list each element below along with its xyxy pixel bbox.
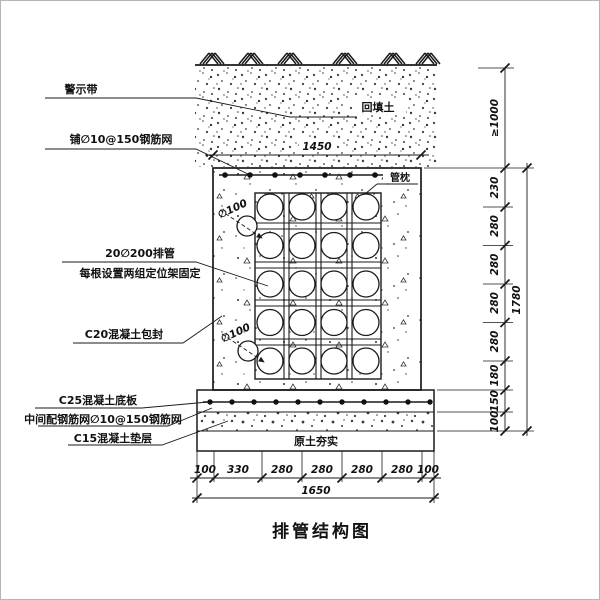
top-mesh-label: 铺∅10@150钢筋网: [70, 132, 173, 146]
pipe-circle: [289, 271, 315, 297]
encasement-label: C20混凝土包封: [85, 327, 163, 341]
dim-bottom-overall-value: 1650: [301, 485, 330, 497]
dim-right-seg-0: 230: [489, 177, 501, 199]
warning-tape-label: 警示带: [64, 82, 98, 96]
pipe-circle: [321, 271, 347, 297]
pipe-row-label-1: 20∅200排管: [105, 246, 175, 260]
slab-mesh-label: 中间配钢筋网∅10@150钢筋网: [24, 412, 182, 426]
dim-cover-depth: ≥1000: [489, 99, 501, 137]
pipe-circle: [257, 233, 283, 259]
pipe-circle: [321, 348, 347, 374]
pipe-circle: [321, 310, 347, 336]
pipe-circle: [353, 348, 379, 374]
pipe-duct-structure-drawing: 回填土 1450: [0, 0, 600, 600]
dim-right-seg-7: 100: [489, 411, 501, 433]
pipe-circle: [353, 310, 379, 336]
dim-bottom-seg-6: 100: [417, 464, 439, 476]
pipe-circle: [289, 194, 315, 220]
dim-bottom-seg-5: 280: [391, 464, 413, 476]
compacted-soil-label: 原土夯实: [294, 434, 338, 448]
cushion-label: C15混凝土垫层: [74, 431, 152, 445]
backfill-label: 回填土: [362, 100, 395, 114]
pipe-circle: [289, 233, 315, 259]
dim-top-width-value: 1450: [302, 141, 331, 153]
cushion-texture: [198, 412, 433, 431]
pipe-circle: [257, 348, 283, 374]
pipe-circle: [353, 194, 379, 220]
dim-right-seg-1: 280: [489, 215, 501, 237]
base-slab-label: C25混凝土底板: [59, 393, 138, 407]
dim-right-seg-5: 180: [489, 365, 501, 387]
dim-bottom-seg-1: 330: [227, 464, 249, 476]
pipe-circle: [257, 310, 283, 336]
dim-bottom-seg-0: 100: [194, 464, 216, 476]
dim-right-seg-2: 280: [489, 254, 501, 276]
pipe-circle: [353, 233, 379, 259]
drawing-canvas: 回填土 1450: [0, 0, 600, 600]
dim-bottom-seg-2: 280: [271, 464, 293, 476]
pipe-circle: [353, 271, 379, 297]
dim-right-seg-4: 280: [489, 331, 501, 353]
pipe-row-label-2: 每根设置两组定位架固定: [80, 266, 201, 280]
pipe-circle: [321, 194, 347, 220]
dim-right-seg-6: 150: [489, 390, 501, 412]
dim-right-overall-value: 1780: [511, 285, 523, 314]
pipe-circle: [321, 233, 347, 259]
pipe-pillow-label: 管枕: [390, 171, 410, 184]
pipe-circle: [257, 194, 283, 220]
dim-bottom-seg-3: 280: [311, 464, 333, 476]
pipe-circle: [289, 348, 315, 374]
dim-right-seg-3: 280: [489, 292, 501, 314]
pipe-circle: [289, 310, 315, 336]
drawing-title: 排管结构图: [272, 521, 372, 542]
dim-bottom-seg-4: 280: [351, 464, 373, 476]
